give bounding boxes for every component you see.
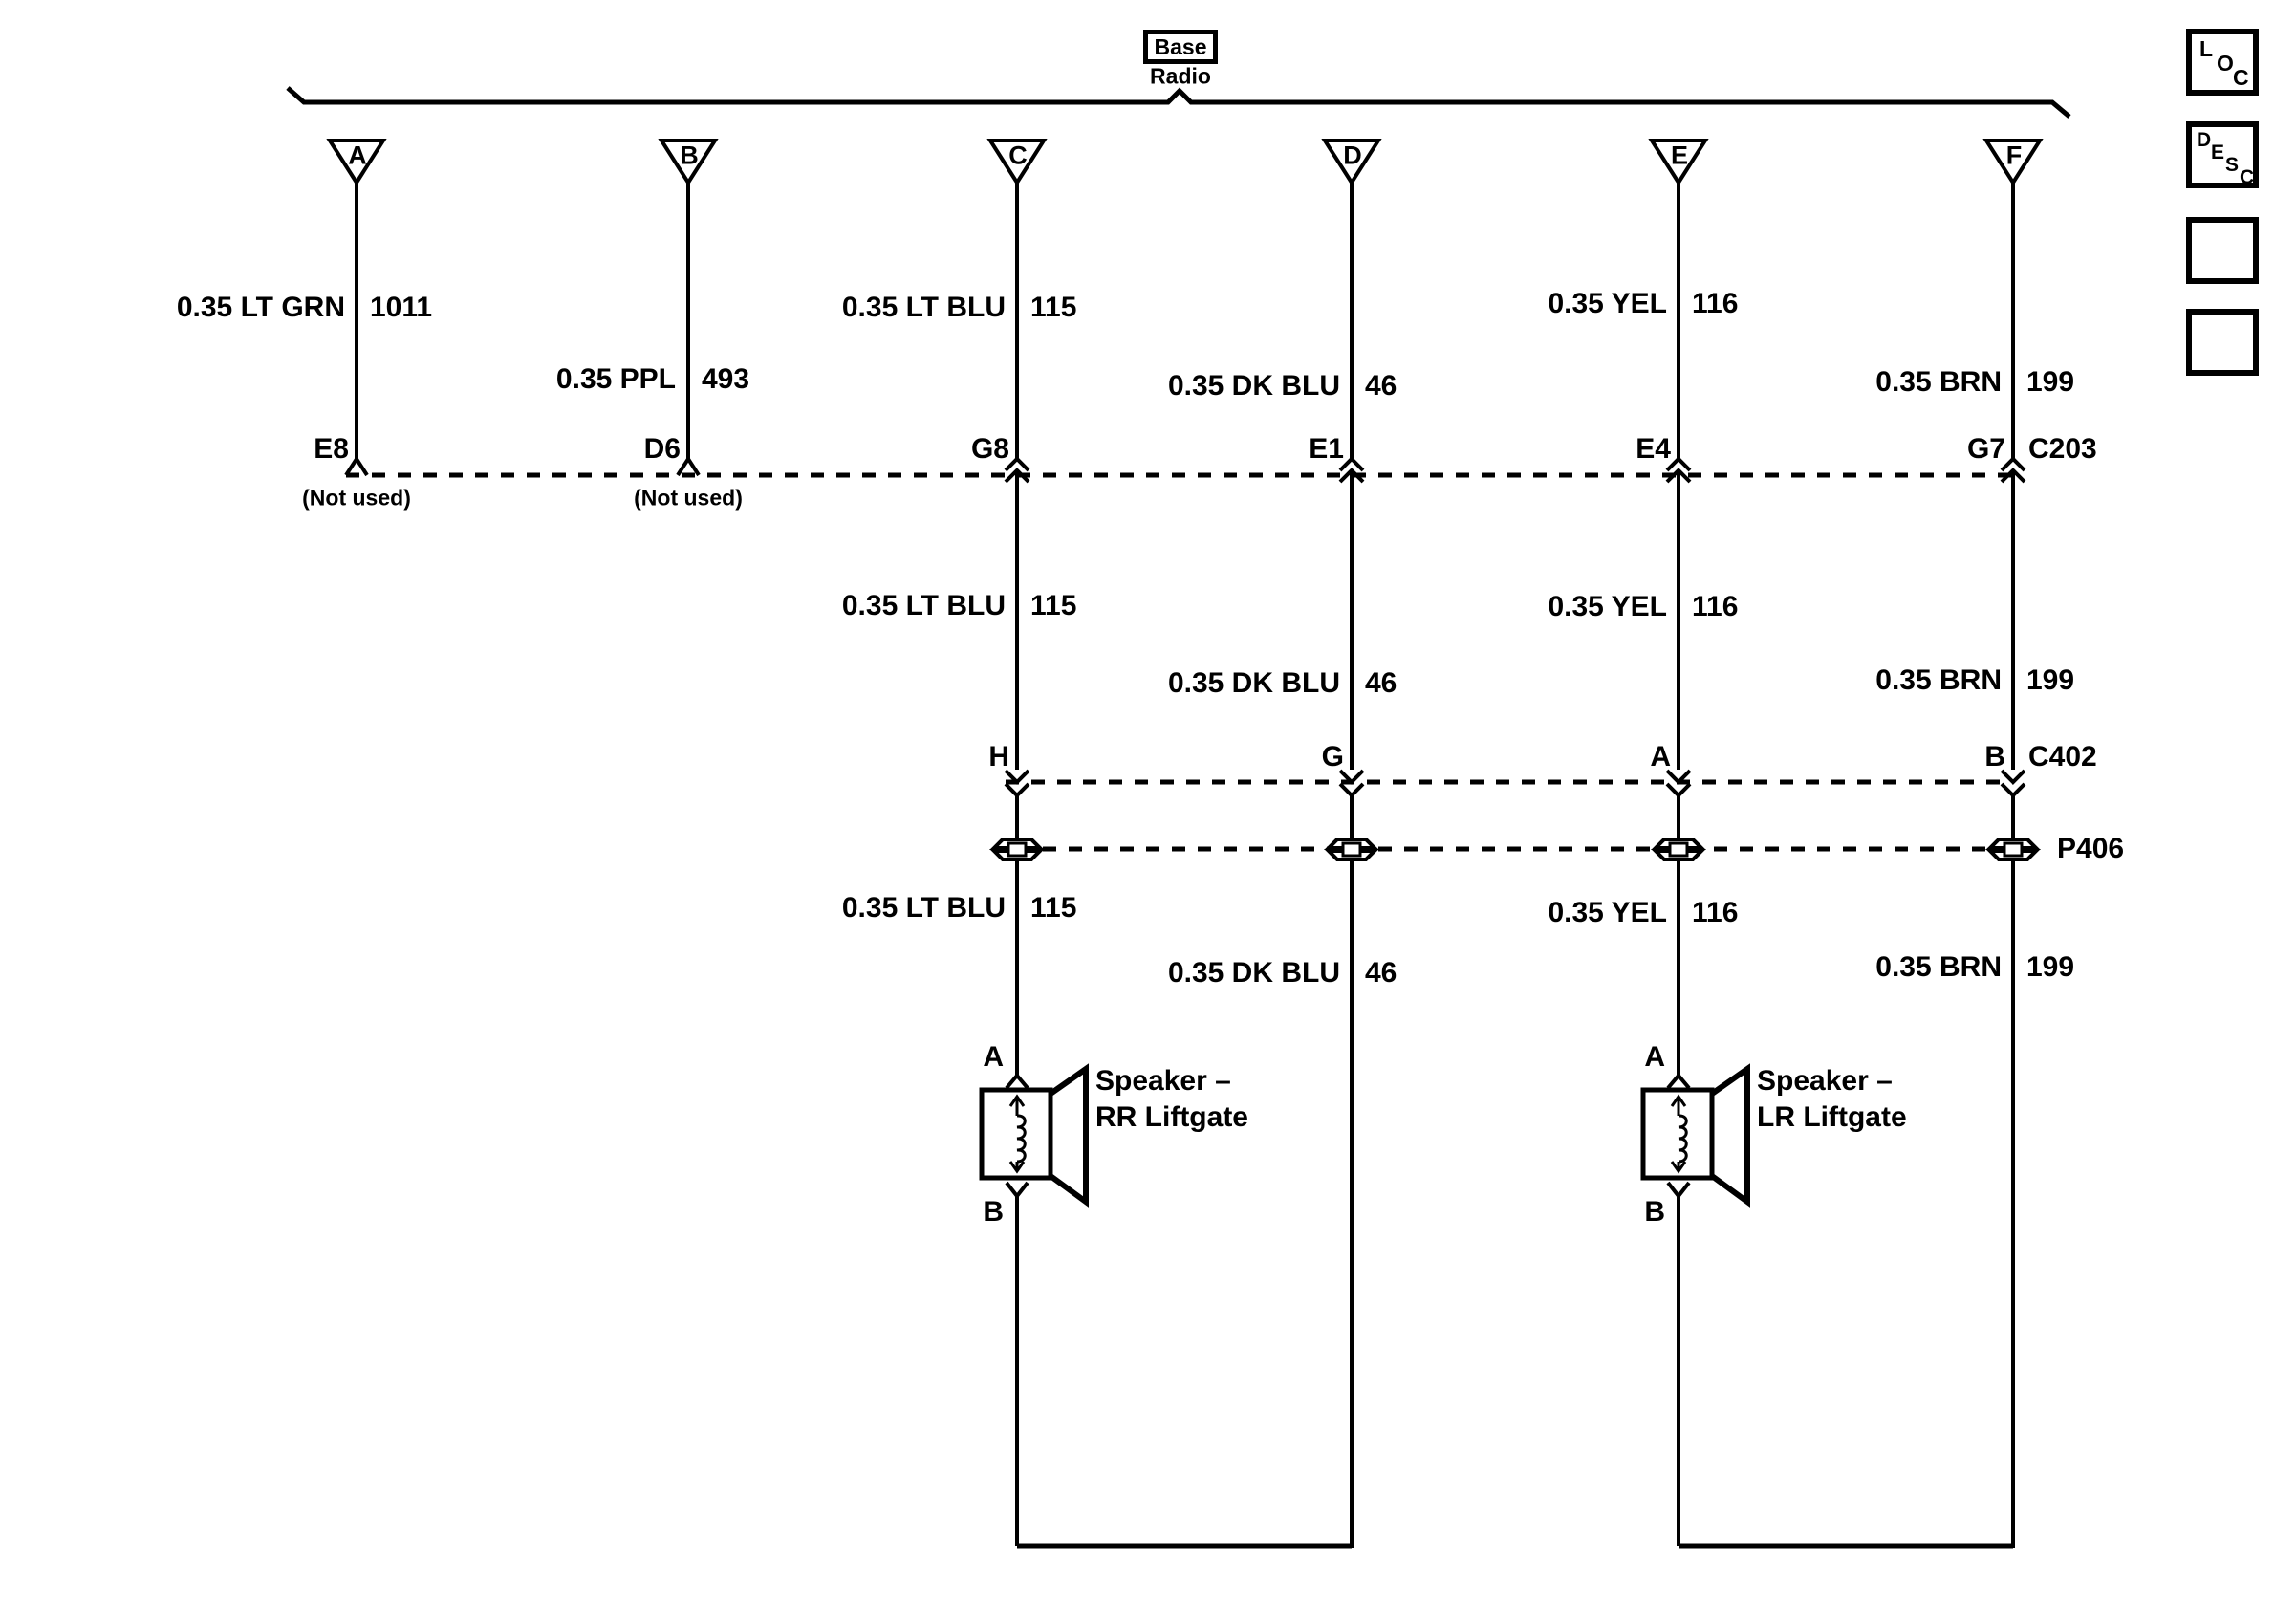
circuit-number: 116 [1692,899,1738,927]
wire-color-label: 0.35 BRN [1875,953,2002,982]
circuit-number: 493 [702,365,749,394]
wire-color-label: 0.35 YEL [1548,593,1667,621]
p406-grommet-d [1329,839,1375,859]
radio-brace [288,88,2069,117]
triangle-label-f: F [2006,143,2023,169]
speaker-rr-horn [1051,1069,1086,1202]
speaker-name-line2: LR Liftgate [1757,1103,1907,1132]
connector-id-p406: P406 [2057,835,2124,863]
not-used-note: (Not used) [634,488,743,510]
triangle-label-b: B [680,143,699,169]
circuit-number: 46 [1365,669,1397,698]
wire-color-label: 0.35 LT BLU [842,592,1006,620]
speaker-name-line1: Speaker – [1757,1067,1893,1096]
speaker-lr-horn [1712,1069,1747,1202]
pin-label-g7: G7 [1967,435,2005,464]
loc-letter: C [2233,67,2249,89]
wire-color-label: 0.35 BRN [1875,666,2002,695]
triangle-label-c: C [1008,143,1028,169]
wire-color-label: 0.35 YEL [1548,290,1667,318]
wire-color-label: 0.35 DK BLU [1168,959,1340,988]
desc-letter: E [2211,142,2224,163]
circuit-number: 116 [1692,593,1738,621]
speaker-pin-top: A [1644,1043,1665,1072]
circuit-number: 115 [1030,294,1076,322]
desc-letter: D [2197,130,2211,150]
loc-button[interactable]: L O C [2186,29,2259,96]
connector-id-c402: C402 [2028,743,2097,772]
speaker-lr-symbol [1643,1069,1747,1202]
wire-color-label: 0.35 DK BLU [1168,372,1340,401]
desc-letter: S [2225,155,2239,175]
pin-label-h: H [988,743,1009,772]
p406-grommet-e [1656,839,1701,859]
pin-label-g8: G8 [971,435,1009,464]
circuit-number: 116 [1692,290,1738,318]
circuit-number: 199 [2026,953,2074,982]
circuit-number: 1011 [370,294,432,322]
c402-chevrons-f [2002,771,2025,795]
loc-letter: L [2199,38,2213,60]
speaker-name-line1: Speaker – [1095,1067,1231,1096]
pin-label-e8: E8 [314,435,349,464]
circuit-number: 115 [1030,894,1076,923]
wiring-diagram-page: Base Radio A B C D E F 0.35 LT GRN 1011 … [0,0,2296,1610]
circuit-number: 199 [2026,368,2074,397]
wire-color-label: 0.35 PPL [556,365,676,394]
triangle-label-e: E [1671,143,1688,169]
next-page-button[interactable] [2186,217,2259,284]
speaker-rr-symbol [982,1069,1086,1202]
p406-grommet-f [1990,839,2036,859]
pin-label-b: B [1984,743,2005,772]
pin-label-g: G [1322,743,1344,772]
desc-letter: C [2240,167,2254,187]
pin-label-a: A [1650,743,1671,772]
pin-label-d6: D6 [644,435,681,464]
speaker-pin-top: A [983,1043,1004,1072]
speaker-pin-bottom: B [1644,1198,1665,1227]
circuit-number: 115 [1030,592,1076,620]
variant-badge: Base [1143,30,1218,64]
triangle-label-a: A [348,143,367,169]
loc-letter: O [2217,53,2234,75]
wire-color-label: 0.35 LT BLU [842,894,1006,923]
wire-color-label: 0.35 LT BLU [842,294,1006,322]
circuit-number: 199 [2026,666,2074,695]
component-title: Radio [1150,66,1211,88]
wire-b-fork [678,459,699,475]
connector-id-c203: C203 [2028,435,2097,464]
circuit-number: 46 [1365,372,1397,401]
wire-a-fork [346,459,367,475]
wire-color-label: 0.35 LT GRN [177,294,345,322]
diagram-linework [0,0,2296,1610]
speaker-name-line2: RR Liftgate [1095,1103,1248,1132]
speaker-pin-bottom: B [983,1198,1004,1227]
wire-color-label: 0.35 BRN [1875,368,2002,397]
prev-page-button[interactable] [2186,309,2259,376]
triangle-label-d: D [1343,143,1362,169]
circuit-number: 46 [1365,959,1397,988]
wire-color-label: 0.35 DK BLU [1168,669,1340,698]
pin-label-e1: E1 [1309,435,1344,464]
not-used-note: (Not used) [302,488,411,510]
desc-button[interactable]: D E S C [2186,121,2259,188]
p406-grommet-c [994,839,1040,859]
pin-label-e4: E4 [1635,435,1671,464]
wire-color-label: 0.35 YEL [1548,899,1667,927]
